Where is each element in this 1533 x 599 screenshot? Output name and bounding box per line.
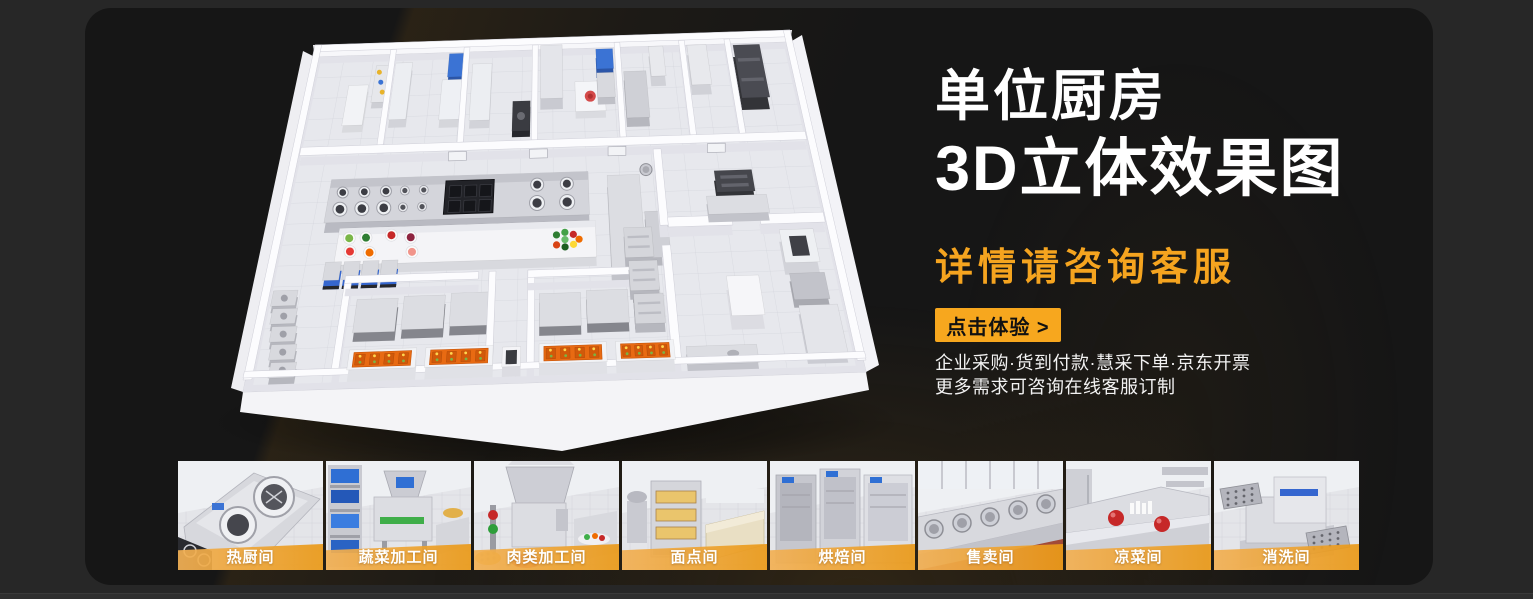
page-bottom-strip — [0, 593, 1533, 599]
thumbnail-meat-processing[interactable]: 肉类加工间 — [474, 461, 619, 570]
kitchen-3d-floorplan-illustration — [150, 10, 910, 470]
banner-panel: 单位厨房 3D立体效果图 详情请咨询客服 点击体验 > 企业采购·货到付款·慧采… — [85, 8, 1433, 585]
thumbnail-baking[interactable]: 烘焙间 — [770, 461, 915, 570]
thumbnail-hot-kitchen[interactable]: 热厨间 — [178, 461, 323, 570]
subheadline: 详情请咨询客服 — [935, 246, 1236, 290]
headline-line1: 单位厨房 — [935, 66, 1167, 126]
thumbnail-pastry[interactable]: 面点间 — [622, 461, 767, 570]
note-line2: 更多需求可咨询在线客服订制 — [935, 376, 1176, 399]
thumbnail-cold-dish[interactable]: 凉菜间 — [1066, 461, 1211, 570]
thumbnail-washing[interactable]: 消洗间 — [1214, 461, 1359, 570]
room-thumbnails: 热厨间蔬菜加工间肉类加工间面点间烘焙间售卖间凉菜间消洗间 — [178, 461, 1359, 570]
promo-banner: 单位厨房 3D立体效果图 详情请咨询客服 点击体验 > 企业采购·货到付款·慧采… — [0, 0, 1533, 599]
note-line1: 企业采购·货到付款·慧采下单·京东开票 — [935, 352, 1250, 375]
cta-label: 点击体验 > — [946, 311, 1049, 340]
headline-line2: 3D立体效果图 — [935, 134, 1345, 204]
thumbnail-selling[interactable]: 售卖间 — [918, 461, 1063, 570]
thumbnail-vegetable-processing[interactable]: 蔬菜加工间 — [326, 461, 471, 570]
cta-button[interactable]: 点击体验 > — [935, 308, 1061, 342]
